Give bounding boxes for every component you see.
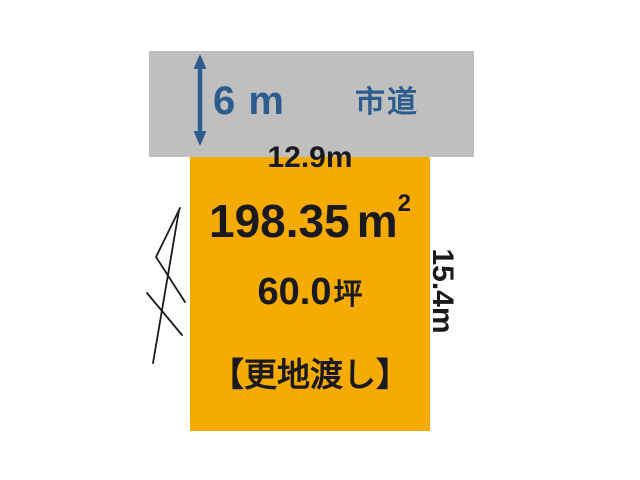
depth-dimension-label: 15.4m (427, 248, 457, 333)
area-tsubo-value: 60.0 (258, 272, 332, 312)
road-name-label: 市道 (355, 88, 419, 118)
road-width-label: 6 m (213, 81, 285, 121)
frontage-dimension-label: 12.9m (190, 143, 430, 173)
condition-label: 【更地渡し】 (150, 358, 470, 392)
hand-drawn-sketch (147, 208, 185, 363)
area-tsubo-label: 60.0 坪 (190, 272, 430, 315)
area-sqm-exponent: 2 (398, 192, 411, 216)
area-tsubo-unit: 坪 (333, 275, 362, 315)
area-sqm-unit: m (357, 198, 398, 244)
land-plot-diagram: 6 m 市道 12.9m 198.35 m 2 60.0 坪 【更地渡し】 15… (0, 0, 640, 480)
area-sqm-value: 198.35 (209, 198, 350, 244)
area-sqm-label: 198.35 m 2 (190, 198, 430, 244)
